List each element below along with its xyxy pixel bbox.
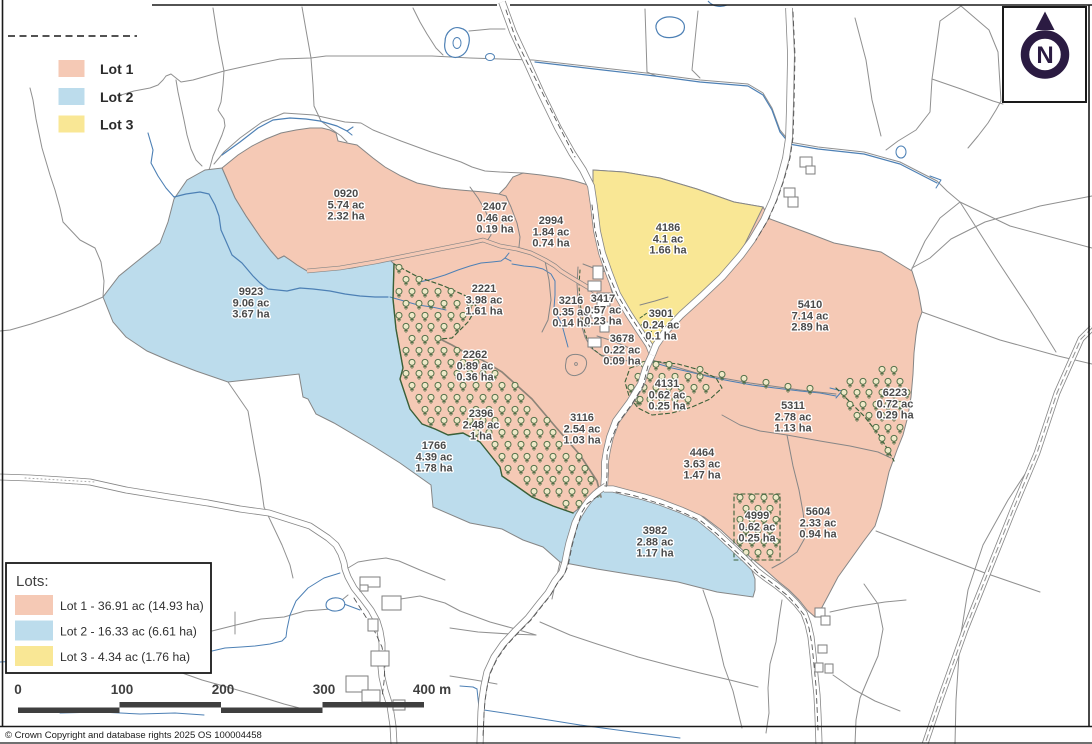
svg-text:Lot 2 - 16.33 ac (6.61 ha): Lot 2 - 16.33 ac (6.61 ha) bbox=[60, 625, 197, 639]
svg-text:200: 200 bbox=[212, 682, 235, 697]
svg-text:Lot 3 - 4.34 ac (1.76 ha): Lot 3 - 4.34 ac (1.76 ha) bbox=[60, 650, 190, 664]
svg-text:300: 300 bbox=[313, 682, 336, 697]
svg-text:400 m: 400 m bbox=[413, 682, 451, 697]
svg-text:Lots:: Lots: bbox=[16, 573, 49, 590]
svg-text:Lot 3: Lot 3 bbox=[100, 117, 134, 133]
svg-text:© Crown Copyright and database: © Crown Copyright and database rights 20… bbox=[5, 730, 262, 741]
svg-text:100: 100 bbox=[111, 682, 134, 697]
svg-text:N: N bbox=[1036, 42, 1053, 69]
svg-text:Lot 2: Lot 2 bbox=[100, 89, 134, 105]
svg-text:Lot 1: Lot 1 bbox=[100, 61, 134, 77]
svg-text:Lot 1 - 36.91 ac (14.93 ha): Lot 1 - 36.91 ac (14.93 ha) bbox=[60, 599, 204, 613]
svg-text:0: 0 bbox=[14, 682, 22, 697]
